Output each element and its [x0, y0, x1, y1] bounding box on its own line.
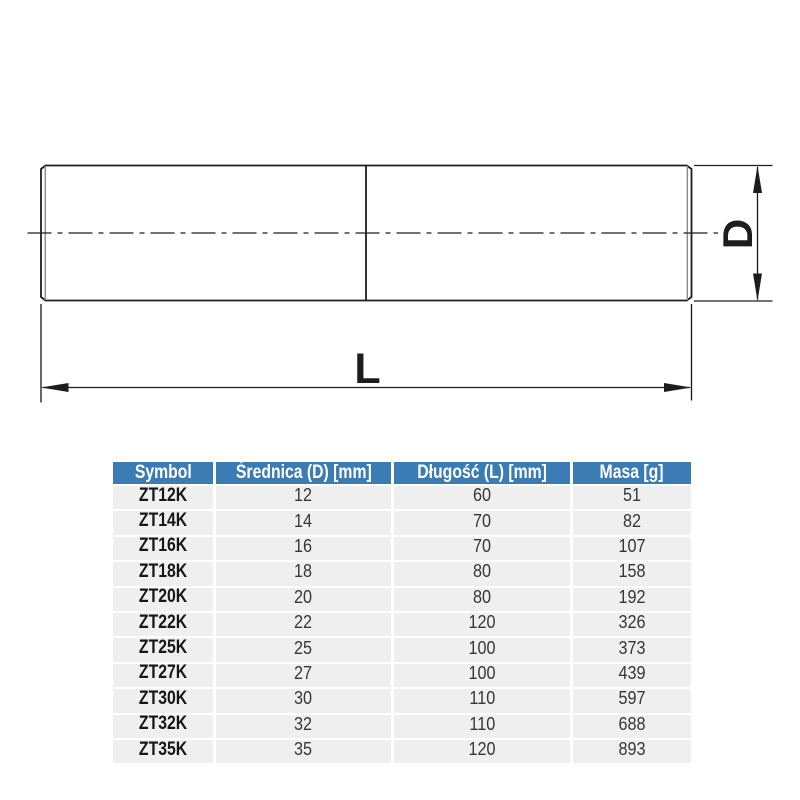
svg-text:L: L — [354, 345, 380, 393]
svg-text:D: D — [714, 219, 761, 249]
